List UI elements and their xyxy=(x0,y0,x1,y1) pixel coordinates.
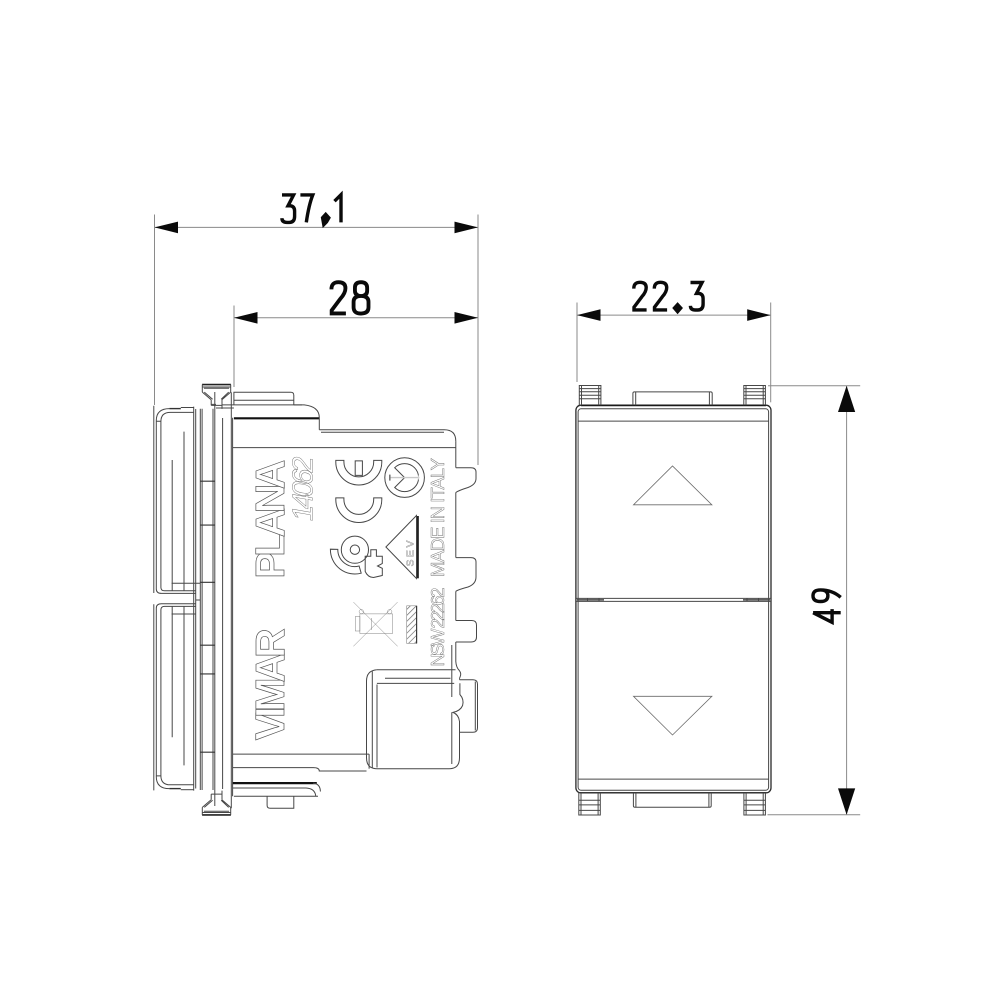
svg-text:14062: 14062 xyxy=(288,454,320,524)
svg-text:MADE IN ITALY: MADE IN ITALY xyxy=(427,458,448,577)
svg-text:VIMAR: VIMAR xyxy=(247,628,293,740)
svg-text:PLANA: PLANA xyxy=(247,460,293,579)
svg-text:NSW 22262: NSW 22262 xyxy=(427,588,448,667)
svg-text:SEV: SEV xyxy=(405,541,417,567)
